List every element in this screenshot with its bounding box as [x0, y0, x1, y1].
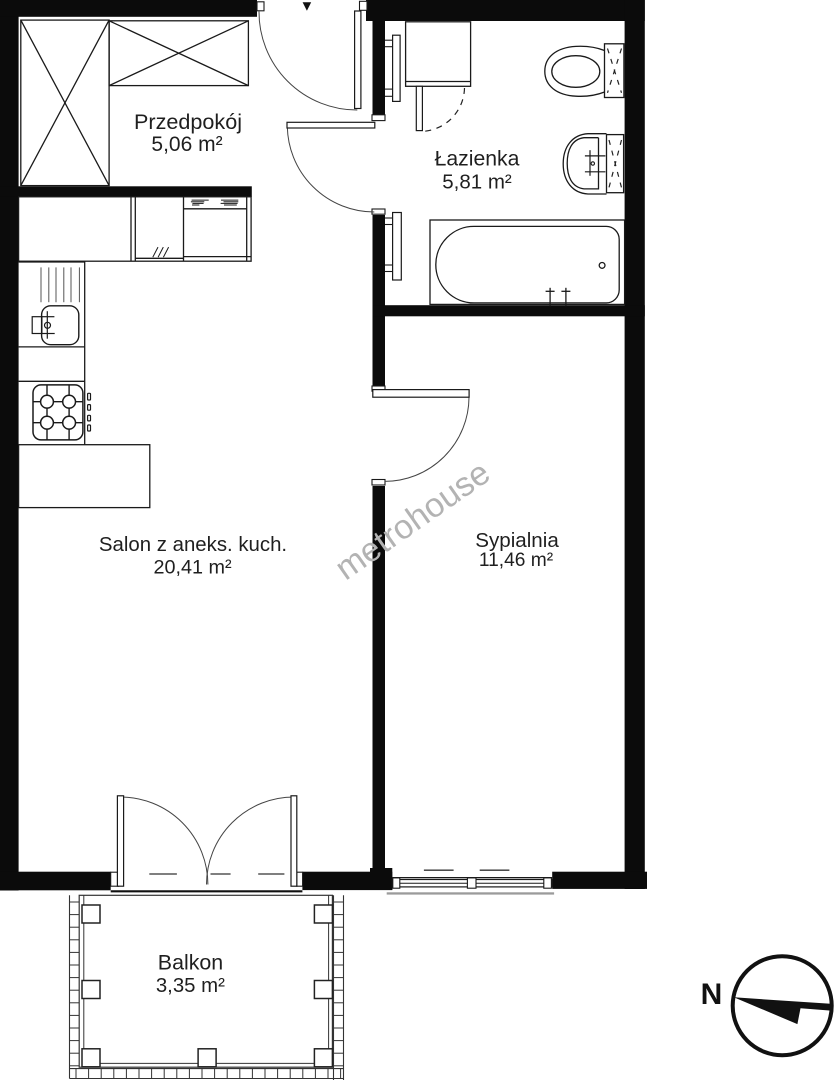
svg-text:11,46 m²: 11,46 m²: [479, 550, 554, 571]
svg-text:Sypialnia: Sypialnia: [475, 529, 559, 552]
svg-text:3,35 m²: 3,35 m²: [156, 975, 225, 997]
svg-text:N: N: [701, 978, 723, 1011]
svg-text:Przedpokój: Przedpokój: [134, 109, 242, 134]
svg-text:Łazienka: Łazienka: [435, 148, 520, 171]
svg-text:5,81 m²: 5,81 m²: [442, 171, 512, 194]
svg-text:5,06 m²: 5,06 m²: [151, 133, 222, 156]
svg-text:20,41 m²: 20,41 m²: [154, 557, 232, 579]
svg-text:Balkon: Balkon: [158, 951, 223, 975]
svg-text:Salon z aneks. kuch.: Salon z aneks. kuch.: [99, 534, 287, 556]
